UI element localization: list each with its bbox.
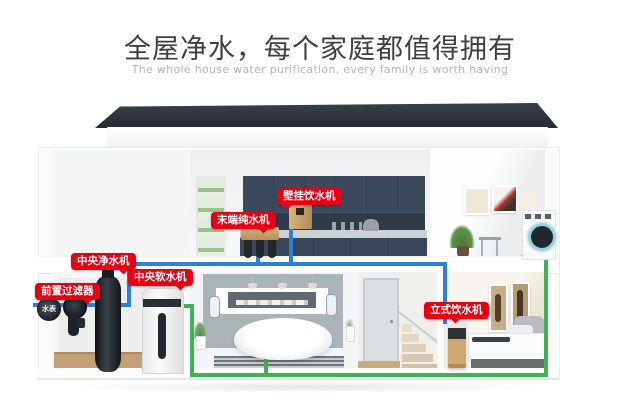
pipe-blue-walldisp-branch [289, 227, 293, 266]
kitchen-shelf-items [332, 222, 362, 230]
poster: 全屋净水，每个家庭都值得拥有 The whole house water pur… [0, 0, 640, 402]
ground-shadow [60, 381, 550, 393]
label-pre-filter: 前置过滤器 [35, 283, 100, 300]
door-handle [390, 320, 393, 323]
upper-left-wall [52, 150, 190, 256]
pre-filter-device-outlet [77, 318, 85, 328]
painting-figure [495, 294, 501, 322]
towel-warmer [209, 296, 220, 318]
label-central-purifier: 中央净水机 [71, 253, 136, 270]
water-meter-device: 水表 [37, 297, 61, 321]
page-subtitle: The whole house water purification, ever… [0, 63, 640, 76]
pipe-blue-main [127, 262, 447, 266]
wall-frame [464, 187, 490, 215]
softener-window [158, 313, 166, 359]
bathroom-vase-pot [346, 326, 355, 342]
water-meter-label: 水表 [42, 304, 56, 314]
bed-blanket [472, 337, 510, 342]
bathtub [234, 318, 332, 360]
washing-machine-door [528, 223, 556, 251]
label-terminal-purifier: 末端纯水机 [211, 212, 276, 229]
page-title: 全屋净水，每个家庭都值得拥有 [0, 27, 640, 66]
pipe-green-right-riser [544, 256, 548, 377]
central-softener-device [142, 288, 184, 374]
roof-fascia [107, 127, 548, 149]
washing-machine-panel [525, 214, 552, 219]
label-wall-dispenser: 壁挂饮水机 [277, 188, 342, 205]
terminal-purifier-cartridge [268, 240, 276, 258]
label-text: 壁挂饮水机 [283, 190, 336, 202]
terminal-purifier-cartridge [244, 240, 252, 258]
pipe-green-left-drop [190, 304, 194, 377]
wall-dispenser-screen [296, 208, 304, 215]
softener-control-band [143, 299, 181, 307]
stool-leg [481, 240, 483, 257]
wall-dispenser-device [289, 203, 312, 229]
wall-frame [492, 185, 518, 213]
label-central-softener: 中央软水机 [128, 269, 193, 286]
roof [95, 103, 558, 128]
door [363, 278, 399, 365]
bathroom-counter-items [236, 300, 308, 305]
terminal-purifier-cartridge [256, 240, 264, 258]
plant [449, 224, 475, 248]
washing-machine [522, 210, 556, 260]
kettle [363, 219, 379, 231]
pipe-green-bottom-run [190, 373, 548, 377]
stool-leg [496, 240, 498, 257]
label-standing-dispenser: 立式饮水机 [424, 302, 489, 319]
towel-warmer [326, 294, 337, 316]
bedroom-painting [489, 284, 508, 332]
bathroom-plant-pot [196, 336, 206, 350]
standing-dispenser-device [448, 320, 466, 368]
